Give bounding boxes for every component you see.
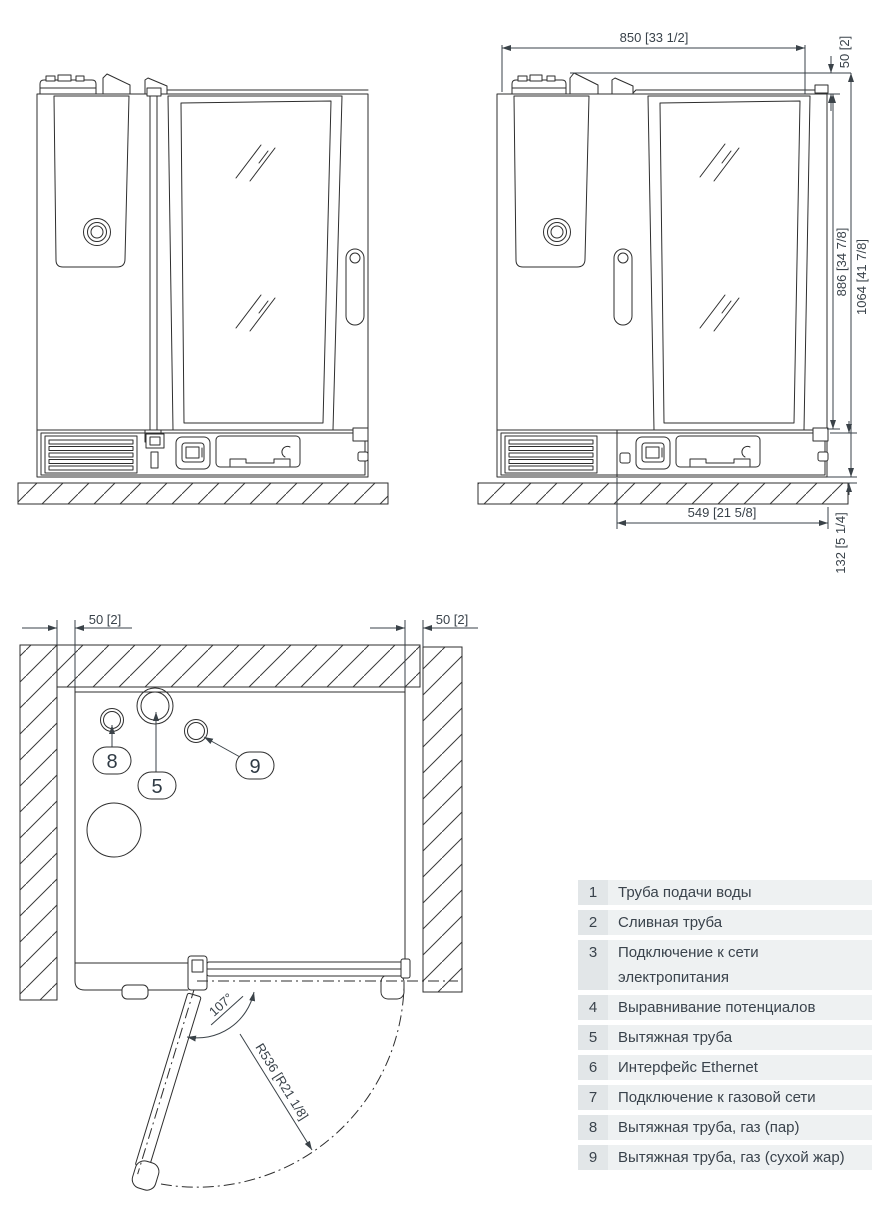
legend-label: Выравнивание потенциалов xyxy=(608,995,872,1020)
oven-door xyxy=(168,96,342,430)
legend-table: 1Труба подачи воды 2Сливная труба 3Подкл… xyxy=(578,880,872,1175)
oven-footprint xyxy=(75,687,405,963)
door-hinge-block xyxy=(188,956,207,990)
radius-leader xyxy=(240,1034,312,1150)
legend-num: 1 xyxy=(578,880,608,905)
legend-num: 8 xyxy=(578,1115,608,1140)
dim-clearance-right-label: 50 [2] xyxy=(436,612,469,627)
dim-width-label: 850 [33 1/2] xyxy=(620,30,689,45)
wall-back xyxy=(57,645,420,687)
callout-5-label: 5 xyxy=(151,776,162,798)
legend-row-4: 4Выравнивание потенциалов xyxy=(578,995,872,1020)
wall-right xyxy=(423,647,462,992)
dimensioned-view: 850 [33 1/2] 50 [2] 886 [34 7/8] 1064 [4… xyxy=(478,30,869,574)
legend-label: Подключение к газовой сети xyxy=(608,1085,872,1110)
legend-label: Вытяжная труба, газ (пар) xyxy=(608,1115,872,1140)
door-handle xyxy=(614,249,632,325)
legend-label: Вытяжная труба, газ (сухой жар) xyxy=(608,1145,872,1170)
legend-label: Труба подачи воды xyxy=(608,880,872,905)
legend-num: 9 xyxy=(578,1145,608,1170)
legend-row-5: 5Вытяжная труба xyxy=(578,1025,872,1050)
legend-row-8: 8Вытяжная труба, газ (пар) xyxy=(578,1115,872,1140)
dim-door-angle-label: 107° xyxy=(206,990,236,1019)
floor-hatch xyxy=(478,483,848,504)
legend-label: Подключение к сети электропитания xyxy=(608,940,872,990)
oven-foot-left xyxy=(122,985,148,999)
dim-plinth-height-label: 132 [5 1/4] xyxy=(833,512,848,573)
legend-num: 6 xyxy=(578,1055,608,1080)
dim-clearance-left-label: 50 [2] xyxy=(89,612,122,627)
dim-body-height-label: 886 [34 7/8] xyxy=(834,228,849,297)
legend-label: Интерфейс Ethernet xyxy=(608,1055,872,1080)
legend-row-2: 2Сливная труба xyxy=(578,910,872,935)
door-handle xyxy=(346,249,364,325)
callout-9-label: 9 xyxy=(249,756,260,778)
legend-row-6: 6Интерфейс Ethernet xyxy=(578,1055,872,1080)
dim-top-clearance-label: 50 [2] xyxy=(837,36,852,69)
callout-8-label: 8 xyxy=(106,751,117,773)
wall-left xyxy=(20,645,57,1000)
door-open xyxy=(129,986,214,1192)
top-vent xyxy=(512,73,828,94)
dim-service-depth-label: 549 [21 5/8] xyxy=(688,505,757,520)
control-panel xyxy=(514,96,589,267)
dim-door-radius-label: R536 [R21 1/8] xyxy=(252,1041,311,1123)
floor-hatch xyxy=(18,483,388,504)
control-panel xyxy=(54,96,129,267)
legend-num: 3 xyxy=(578,940,608,990)
dim-total-height-label: 1064 [41 7/8] xyxy=(854,239,869,315)
legend-num: 4 xyxy=(578,995,608,1020)
front-view xyxy=(18,74,388,504)
legend-label: Вытяжная труба xyxy=(608,1025,872,1050)
legend-label: Сливная труба xyxy=(608,910,872,935)
oven-foot-right xyxy=(381,975,404,999)
legend-row-1: 1Труба подачи воды xyxy=(578,880,872,905)
vent-grille xyxy=(45,436,137,473)
door-closed xyxy=(207,959,410,978)
vent-grille xyxy=(505,436,597,473)
top-view: 8 5 9 50 [2] 50 [2] xyxy=(20,612,478,1192)
dim-door-angle: 107° xyxy=(200,984,243,1025)
dim-body-height: 886 [34 7/8] xyxy=(827,94,849,429)
oven-door xyxy=(648,96,810,430)
legend-row-7: 7Подключение к газовой сети xyxy=(578,1085,872,1110)
legend-row-3: 3Подключение к сети электропитания xyxy=(578,940,872,990)
legend-num: 2 xyxy=(578,910,608,935)
legend-num: 7 xyxy=(578,1085,608,1110)
legend-num: 5 xyxy=(578,1025,608,1050)
legend-row-9: 9Вытяжная труба, газ (сухой жар) xyxy=(578,1145,872,1170)
